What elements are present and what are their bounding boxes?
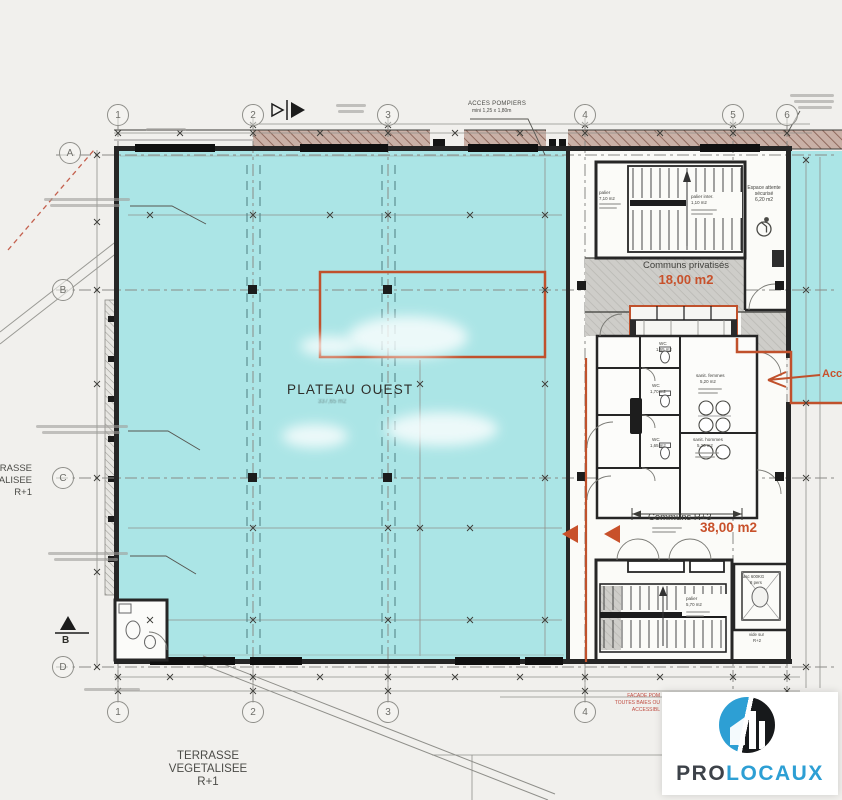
blur-patch [348,316,468,358]
room-area-sanit-hommes: 5,20 m2 [697,444,713,448]
logo-text-locaux: LOCAUX [726,762,824,785]
blurred-annotation [336,104,366,107]
room-area-wc3: 1,65 m2 [650,444,666,448]
terrasse-left-label-3: R+1 [0,488,32,498]
grid-bubble-top-4: 4 [574,104,596,126]
room-area-sanit-femmes: 5,20 m2 [700,380,716,384]
blur-patch [300,336,358,356]
plateau-ouest-floor [119,151,566,660]
blurred-annotation [50,204,120,207]
room-area-palier-inter: 1,10 m2 [691,201,707,205]
room-area-communs-r3: 38,00 m2 [700,521,757,535]
grid-bubble-top-3: 3 [377,104,399,126]
blurred-annotation [790,94,834,97]
blurred-annotation [691,213,713,215]
grid-bubble-row-c: C [52,467,74,489]
radiator-fixture [772,250,784,267]
blurred-annotation [698,392,718,394]
blurred-annotation [42,431,120,434]
blurred-annotation [599,203,621,205]
blurred-annotation [686,615,704,617]
grid-bubble-row-b: B [52,279,74,301]
grid-bubble-top-5: 5 [722,104,744,126]
room-label-wc3: WC [652,438,660,443]
room-label-communs-privatises: Communs privatisés [628,261,744,271]
grid-bubble-bottom-2: 2 [242,701,264,723]
facade-note-2: TOUTES BAIES OU [552,701,660,706]
blurred-annotation [146,128,186,131]
room-label-sanit-hommes: sanit. hommes [693,438,723,443]
grid-bubble-bottom-3: 3 [377,701,399,723]
room-label-ascenseur-1: asc 600KG [743,575,764,579]
building-icon [759,721,765,749]
blurred-annotation [698,388,722,390]
blurred-annotation [798,106,832,109]
plateau-est-floor [791,151,842,402]
room-area-palier-top: 7,10 m2 [599,197,615,201]
grid-bubble-top-2: 2 [242,104,264,126]
sanitary-block [597,336,757,518]
room-label-sanit-femmes: sanit. femmes [696,374,725,379]
blur-patch [386,412,498,446]
acces-pompiers-dim: mini 1,25 x 1,80m [472,109,511,114]
blurred-annotation [686,611,710,613]
room-label-palier-inter: palier inter. [691,195,713,200]
terrasse-left-label-1: TERRASSE [0,464,32,474]
blurred-annotation [338,110,364,113]
grid-bubble-top-6: 6 [776,104,798,126]
grid-bubble-row-a: A [59,142,81,164]
prolocaux-wordmark: PROLOCAUX [662,762,838,786]
acces-est-label: Acc [822,369,842,380]
section-marker-b-icon [55,616,89,633]
room-label-wc2: WC [652,384,660,389]
grid-bubble-row-d: D [52,656,74,678]
grid-bubble-bottom-1: 1 [107,701,129,723]
grid-bubble-top-1: 1 [107,104,129,126]
blurred-annotation [794,100,834,103]
blurred-annotation [36,425,128,428]
blurred-annotation [84,688,140,691]
terrasse-left-label-2: VEGETALISEE [0,476,32,486]
room-label-wc1: WC [659,342,667,347]
building-icon [749,711,756,749]
blur-patch [282,424,348,448]
blurred-annotation [44,198,130,201]
room-label-ascenseur-2: 8 pers [750,581,762,585]
room-area-plateau-ouest: 337,65 m2 [318,399,346,405]
terrasse-label-3: R+1 [146,777,270,789]
corner-room [115,600,167,660]
blurred-annotation [48,552,128,555]
room-area-communs-privatises: 18,00 m2 [628,273,744,286]
acces-pompiers-label: ACCES POMPIERS [468,101,526,107]
terrasse-label-1: TERRASSE [146,751,270,763]
room-label-vide-2: R+2 [753,639,761,643]
floorplan-screenshot: 1 2 3 4 5 6 1 2 3 4 A B C D B ACCES POMP… [0,0,842,800]
prolocaux-logo-icon [719,697,775,753]
facade-note-3: ACCESSIBL [552,708,660,713]
room-area-palier-bas: 5,70 m2 [686,603,702,607]
logo-text-pro: PRO [676,762,726,785]
terrasse-label-2: VEGETALISEE [146,764,270,776]
blurred-annotation [691,209,717,211]
stairwell-top [596,162,745,258]
room-area-wc1: 1,65 m2 [656,348,672,352]
room-area-espace-attente: 6,20 m2 [744,198,784,203]
prolocaux-logo: PROLOCAUX [662,692,838,795]
blurred-annotation [54,558,118,561]
blurred-annotation [652,531,676,533]
section-marker-b-label: B [62,636,69,646]
room-area-wc2: 1,70 m2 [650,390,666,394]
duct-shaft [630,398,642,434]
blurred-annotation [695,452,719,454]
blurred-annotation [599,207,617,209]
section-cut-marker [272,100,305,120]
room-label-vide-1: vide sur [749,633,764,637]
room-label-plateau-ouest: PLATEAU OUEST [287,383,413,397]
room-label-palier-top: palier [599,191,610,196]
facade-note-1: FACADE POM [552,694,660,699]
room-label-palier-bas: palier [686,597,697,602]
lockers-row [630,306,737,338]
blurred-annotation [695,456,715,458]
blurred-annotation [652,527,682,529]
building-icon [730,717,745,745]
